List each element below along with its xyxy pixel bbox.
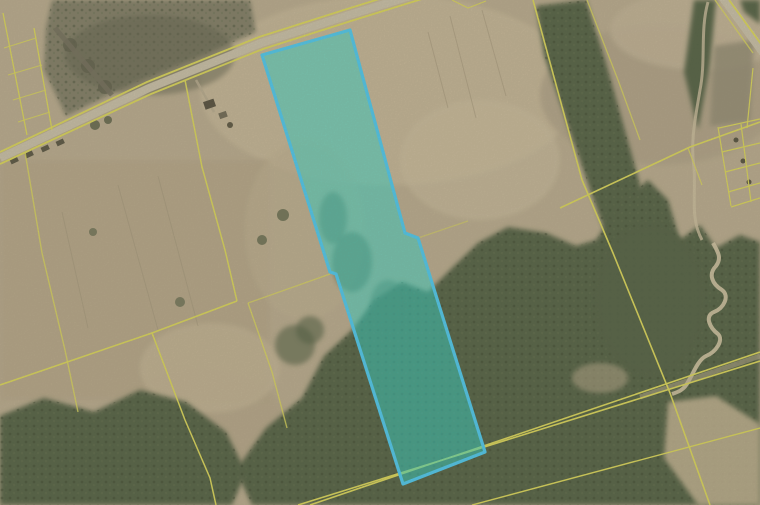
photo-grain: [0, 0, 760, 505]
grain-overlay: [0, 0, 760, 505]
aerial-map-view[interactable]: [0, 0, 760, 505]
map-svg[interactable]: [0, 0, 760, 505]
